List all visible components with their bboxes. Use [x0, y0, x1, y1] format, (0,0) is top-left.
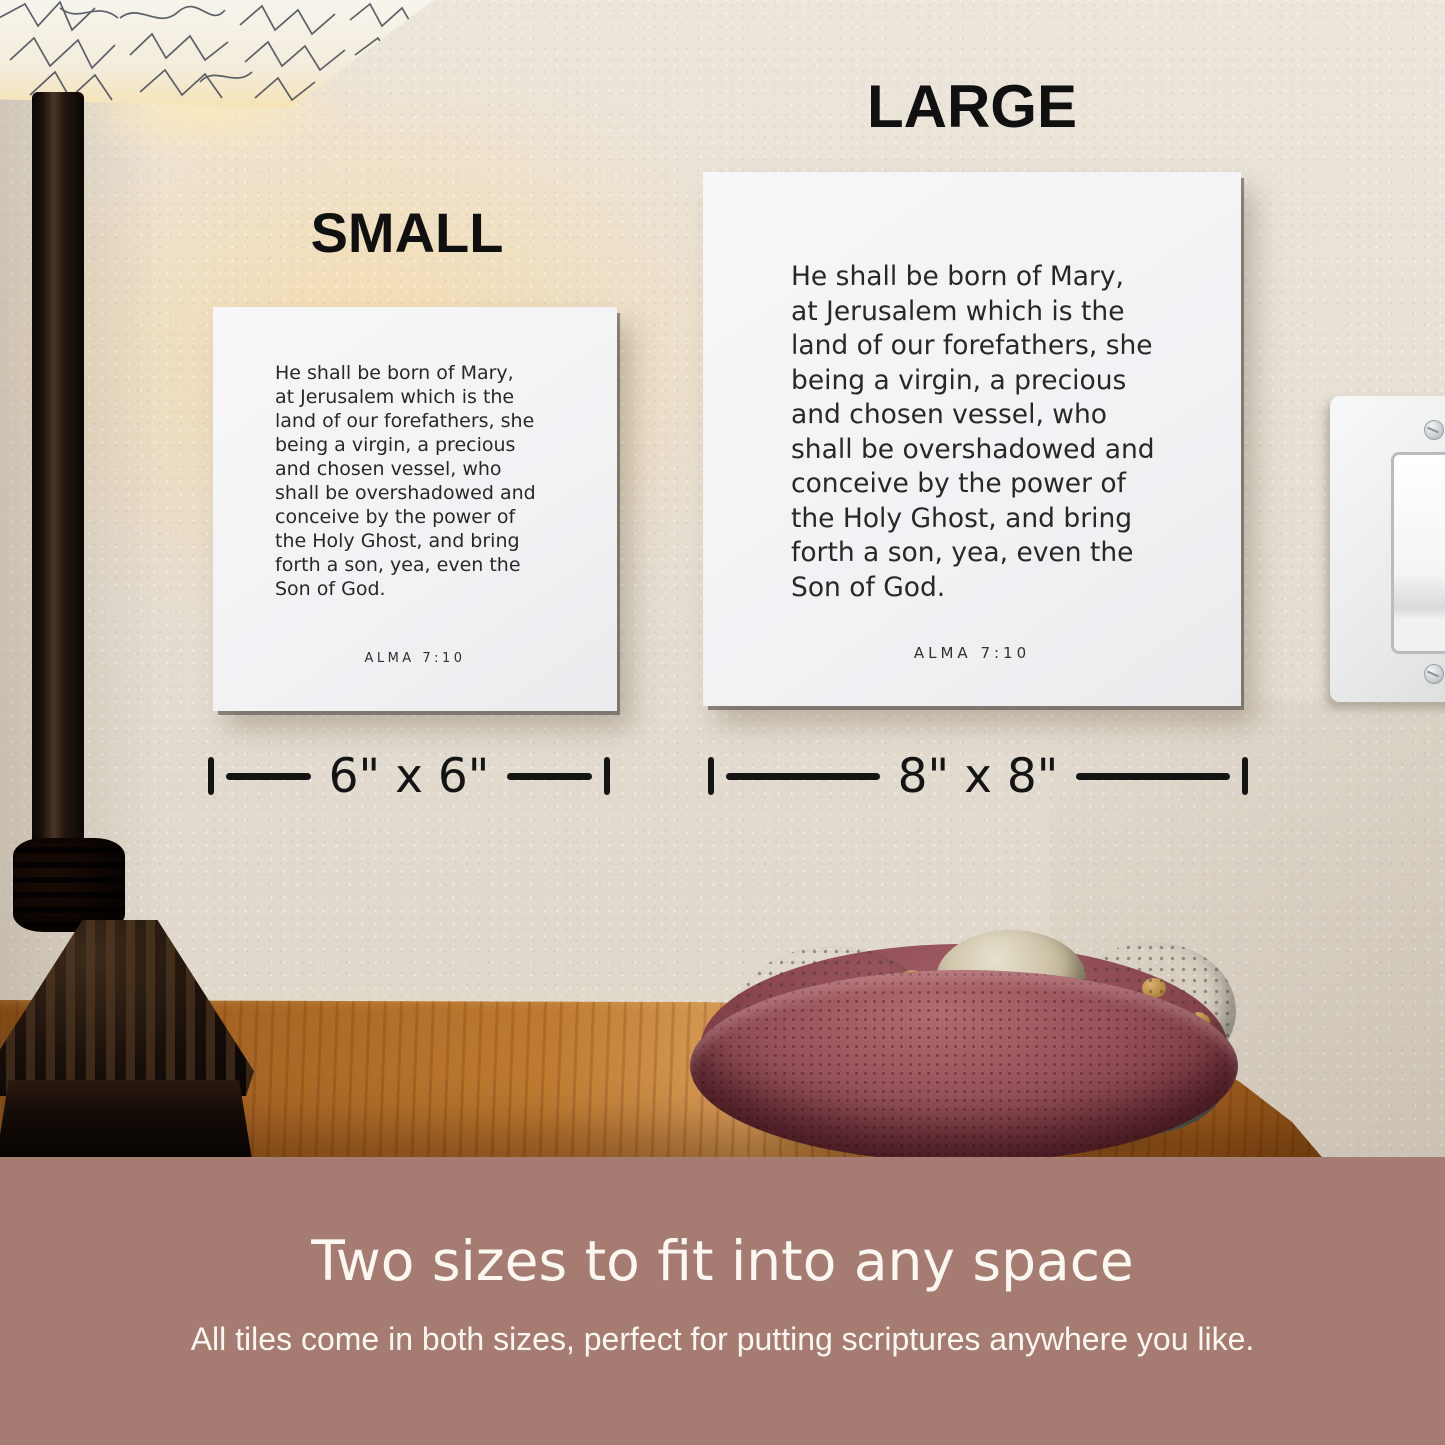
dimension-endcap-right [604, 757, 610, 795]
footer-title: Two sizes to fit into any space [0, 1229, 1445, 1293]
footer-subtitle: All tiles come in both sizes, perfect fo… [0, 1321, 1445, 1358]
rock-bowl [690, 918, 1238, 1164]
dimension-line [507, 773, 592, 780]
lamp-pole [32, 92, 84, 854]
scripture-tile-large: He shall be born of Mary, at Jerusalem w… [703, 172, 1241, 706]
scripture-text: He shall be born of Mary, at Jerusalem w… [275, 361, 605, 601]
lamp-neck-rings [13, 838, 125, 932]
lamp-base-plinth [0, 1080, 252, 1160]
dimension-line [226, 773, 311, 780]
scripture-reference: ALMA 7:10 [213, 651, 617, 666]
size-label-large: LARGE [802, 72, 1142, 141]
footer-banner: Two sizes to fit into any space All tile… [0, 1157, 1445, 1445]
dimension-line [726, 773, 880, 780]
light-switch-rocker [1391, 452, 1445, 654]
scripture-tile-small: He shall be born of Mary, at Jerusalem w… [213, 307, 617, 711]
dimension-label-small: 6" x 6" [323, 749, 496, 804]
dimension-label-large: 8" x 8" [892, 749, 1065, 804]
bowl-front [690, 970, 1238, 1162]
size-label-small: SMALL [237, 200, 577, 265]
dimension-endcap-left [208, 757, 214, 795]
scripture-reference: ALMA 7:10 [703, 644, 1241, 662]
dimension-endcap-left [708, 757, 714, 795]
switch-screw-top [1424, 420, 1444, 440]
switch-screw-bottom [1424, 664, 1444, 684]
scripture-text: He shall be born of Mary, at Jerusalem w… [791, 260, 1231, 605]
dimension-indicator-small: 6" x 6" [208, 744, 610, 808]
dimension-endcap-right [1242, 757, 1248, 795]
dimension-indicator-large: 8" x 8" [708, 744, 1248, 808]
product-photo-scene: He shall be born of Mary, at Jerusalem w… [0, 0, 1445, 1445]
dimension-line [1076, 773, 1230, 780]
